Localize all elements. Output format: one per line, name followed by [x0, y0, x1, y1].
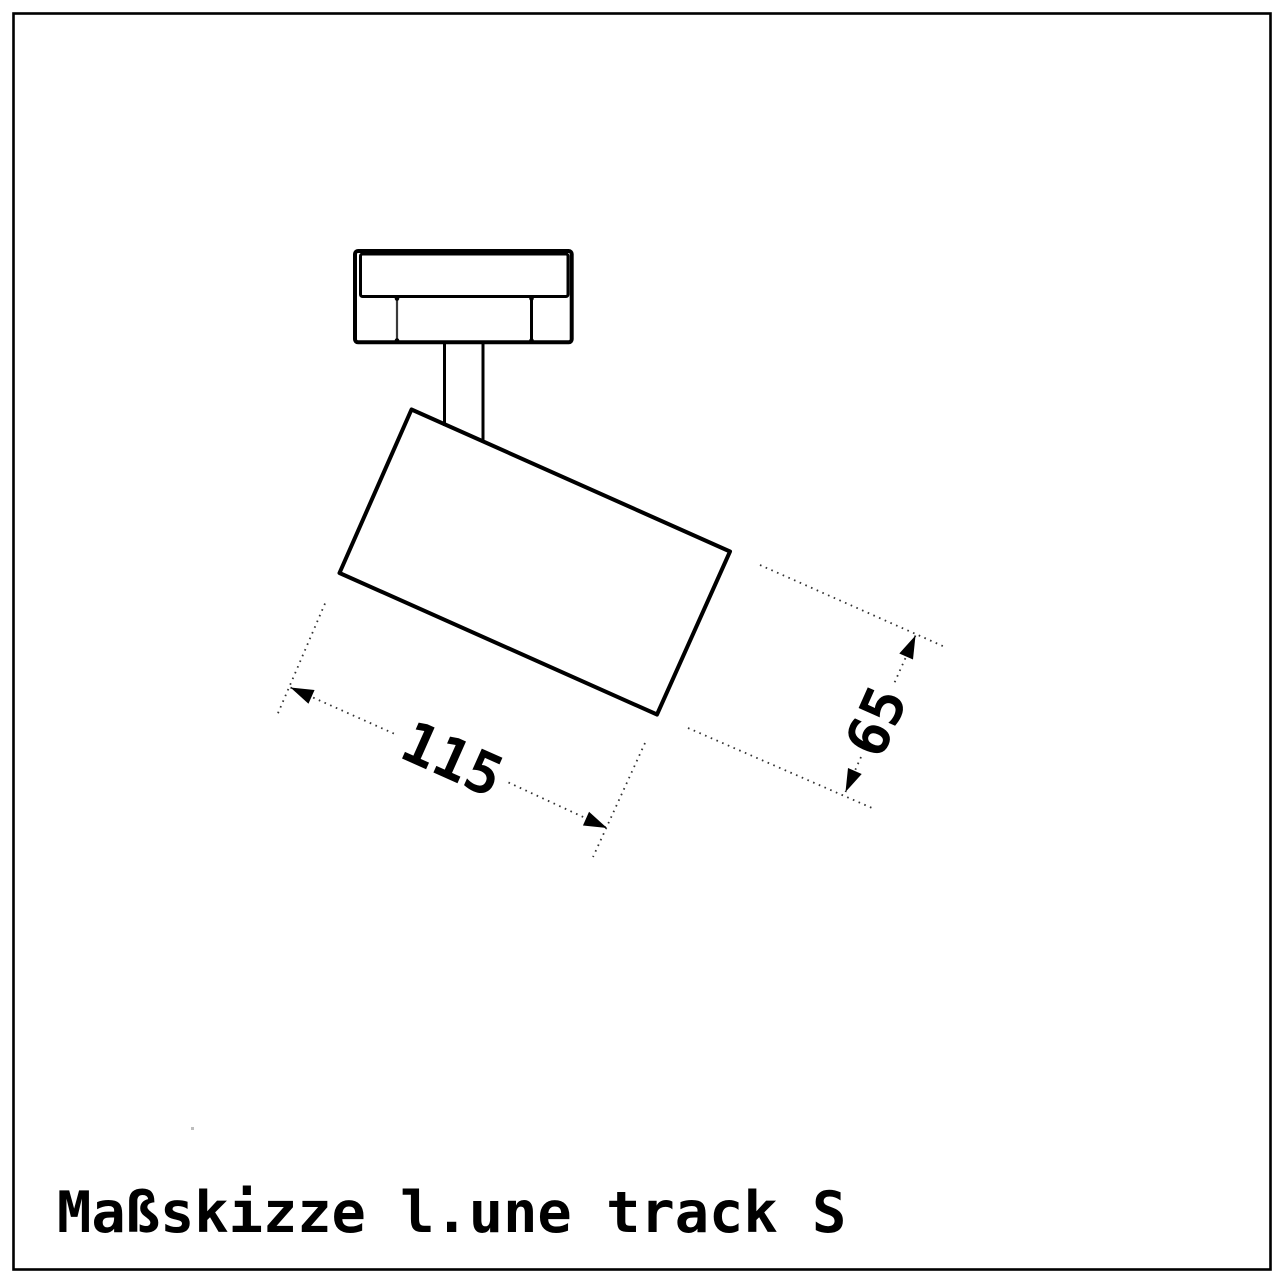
extension-line-top: [760, 565, 945, 647]
dimension-arrowhead-icon: [899, 632, 922, 659]
print-speck: [191, 1127, 194, 1130]
extension-line-right: [593, 743, 645, 857]
dimension-arrowhead-icon: [287, 681, 314, 704]
dimension-length-label: 115: [392, 709, 513, 811]
dimension-sketch-page: 115 65 Maßskizze l.une track S: [0, 0, 1285, 1285]
extension-line-left: [277, 604, 325, 716]
drawing-border: [14, 14, 1271, 1270]
technical-drawing: 115 65 Maßskizze l.une track S: [0, 0, 1285, 1285]
track-adapter: [355, 251, 572, 343]
dimension-length: 115: [277, 604, 645, 858]
spot-head-cylinder: [340, 410, 731, 715]
drawing-caption: Maßskizze l.une track S: [57, 1180, 846, 1246]
dimension-arrowhead-icon: [839, 768, 862, 795]
divider-end-dot: [395, 296, 400, 301]
divider-end-dot: [395, 338, 400, 343]
dimension-arrowhead-icon: [583, 812, 610, 835]
adapter-inner-plate: [361, 254, 569, 297]
divider-end-dot: [529, 338, 534, 343]
dimension-height: 65: [688, 565, 945, 808]
dimension-height-label: 65: [833, 677, 921, 767]
divider-end-dot: [529, 296, 534, 301]
